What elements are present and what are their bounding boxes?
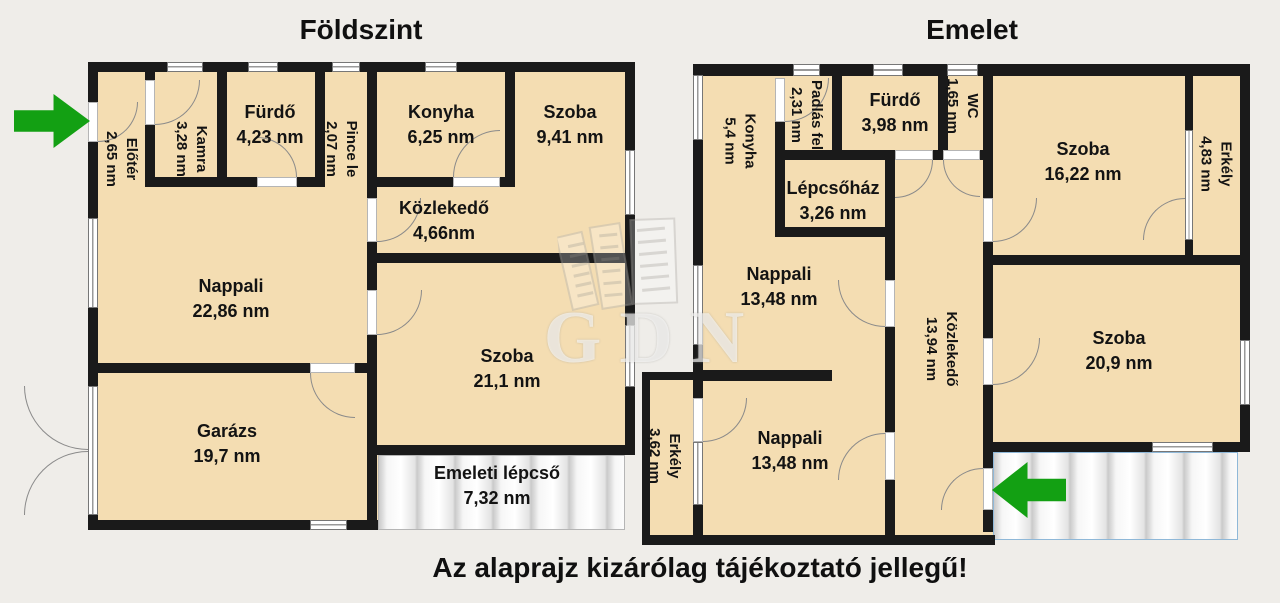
wall [642,535,693,545]
wall [88,520,310,530]
window [625,150,635,215]
balcony-window [1185,130,1193,240]
wall [1213,442,1248,452]
wall [983,510,993,532]
window [248,62,278,72]
room-label-furdo: Fürdő4,23 nm [210,100,330,150]
green-arrow-entrance-icon [14,94,90,148]
room-label-nappali: Nappali22,86 nm [151,274,311,324]
wall [985,442,1152,452]
door [310,363,355,373]
room-label-eloter: Előtér2,65 nm [101,94,141,224]
window [693,75,703,140]
window [873,64,903,76]
room-label-kamra: Kamra3,28 nm [171,89,211,209]
wall [693,140,703,265]
door [983,468,993,510]
wall [693,64,703,75]
wall [885,327,895,432]
wall [145,72,155,80]
room-label-lepcsohaz: Lépcsőház3,26 nm [753,176,913,226]
room-label-konyha: Konyha6,25 nm [381,100,501,150]
wall [377,253,635,263]
entrance-door [88,102,98,142]
door [885,280,895,327]
upper-floor-title: Emelet [842,14,1102,46]
wall [1240,64,1250,340]
room-label-erkely2: Erkély3,62 nm [644,406,684,506]
wall [625,215,635,325]
wall [775,227,893,237]
wall [367,335,377,530]
door [983,198,993,242]
wall [983,255,1250,265]
wall [367,242,377,290]
window [332,62,360,72]
wall [642,372,693,380]
garage-door [88,386,98,515]
door [943,150,980,160]
room-label-pince: Pince le2,07 nm [321,84,361,214]
wall [903,64,947,76]
room-label-szoba2: Szoba21,1 nm [437,344,577,394]
door [145,80,155,125]
room-label-kozlekedo-em: Közlekedő13,94 nm [921,279,961,419]
room-label-szoba20: Szoba20,9 nm [1039,326,1199,376]
room-label-erkely1: Erkély4,83 nm [1196,117,1236,212]
wall [367,72,377,198]
wall [1185,240,1193,265]
door [895,150,933,160]
window [625,325,635,387]
wall [88,363,310,373]
window [310,520,347,530]
window [1152,442,1213,452]
wall [693,535,995,545]
balcony-door [693,398,703,442]
wall [1185,76,1193,130]
ground-floor-title: Földszint [231,14,491,46]
wall [88,308,98,386]
wall [885,480,895,535]
window [693,442,703,505]
room-label-szoba16: Szoba16,22 nm [1003,137,1163,187]
window [88,218,98,308]
wall [88,142,98,218]
door [885,432,895,480]
wall [88,62,98,102]
wall [978,64,1250,76]
wall [983,76,993,198]
wall [693,370,832,381]
wall [355,363,368,373]
room-label-emeleti-lepcso: Emeleti lépcső7,32 nm [397,461,597,511]
room-label-garazs: Garázs19,7 nm [152,419,302,469]
floor-plan: Földszint Emelet [0,0,1280,603]
door [257,177,297,187]
window [425,62,457,72]
room-label-konyha-em: Konyha5,4 nm [720,94,760,189]
room-label-nappali2: Nappali13,48 nm [710,426,870,476]
window [167,62,203,72]
door [775,78,785,122]
disclaimer-caption: Az alaprajz kizárólag tájékoztató jelleg… [350,552,1050,584]
door [453,177,500,187]
garage-door-arc [24,386,88,450]
room-label-padlas: Padlás fel2,31 nm [786,69,826,161]
wall [820,64,873,76]
room-label-kozlekedo: Közlekedő4,66nm [374,196,514,246]
room-label-szoba1: Szoba9,41 nm [510,100,630,150]
wall [983,385,993,468]
garage-door-arc [24,451,88,515]
door [367,290,377,335]
window [1240,340,1250,405]
door [983,338,993,385]
room-label-furdo-em: Fürdő3,98 nm [835,88,955,138]
room-label-nappali1: Nappali13,48 nm [699,262,859,312]
room-label-wc: WC1,65 nm [942,70,982,142]
wall [693,64,793,76]
wall [377,177,453,187]
wall [368,445,635,455]
